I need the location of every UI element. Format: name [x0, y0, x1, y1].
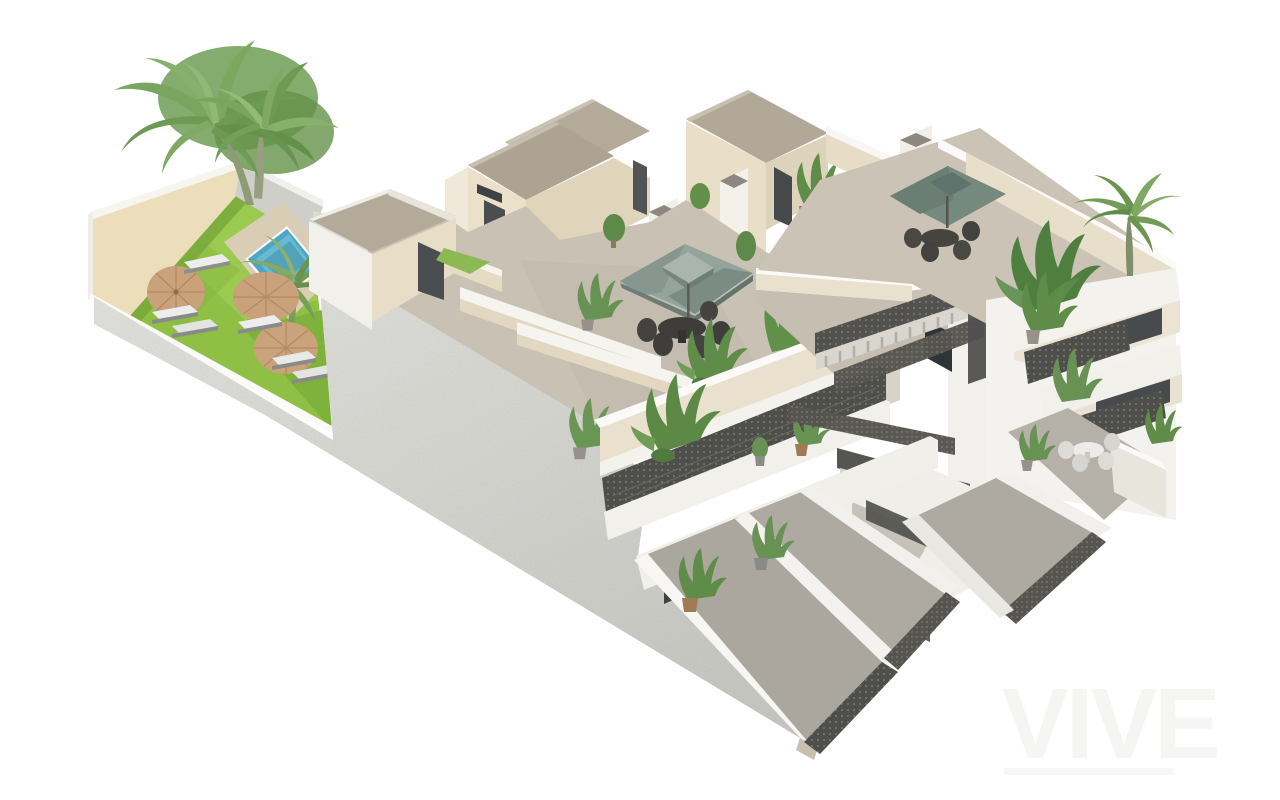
svg-text:VIVE: VIVE [1002, 668, 1218, 780]
